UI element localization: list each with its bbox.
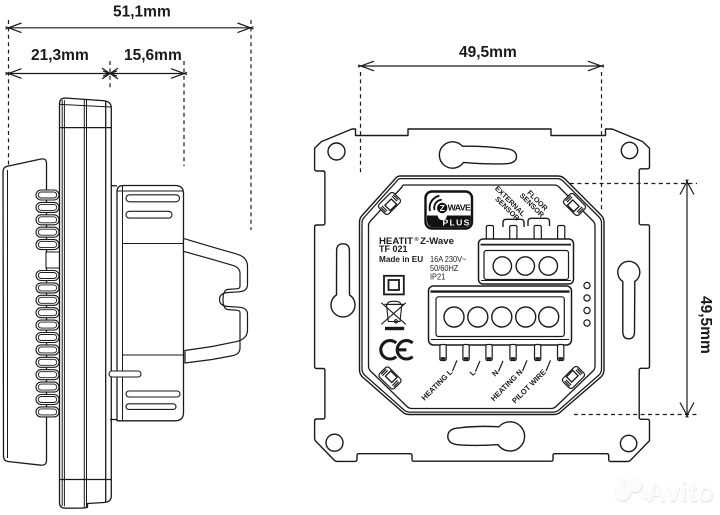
- svg-text:WAVE: WAVE: [448, 203, 471, 213]
- svg-text:49,5mm: 49,5mm: [697, 296, 714, 354]
- svg-text:21,3mm: 21,3mm: [31, 47, 89, 64]
- svg-text:15,6mm: 15,6mm: [124, 47, 182, 64]
- svg-text:49,5mm: 49,5mm: [459, 44, 517, 61]
- svg-text:IP21: IP21: [430, 272, 446, 282]
- svg-text:Avito: Avito: [646, 476, 714, 507]
- svg-text:PLUS: PLUS: [443, 217, 471, 227]
- svg-text:51,1mm: 51,1mm: [113, 4, 171, 21]
- svg-text:Z: Z: [440, 203, 445, 213]
- svg-text:TF 021: TF 021: [379, 244, 408, 254]
- svg-text:Made in EU: Made in EU: [379, 255, 423, 264]
